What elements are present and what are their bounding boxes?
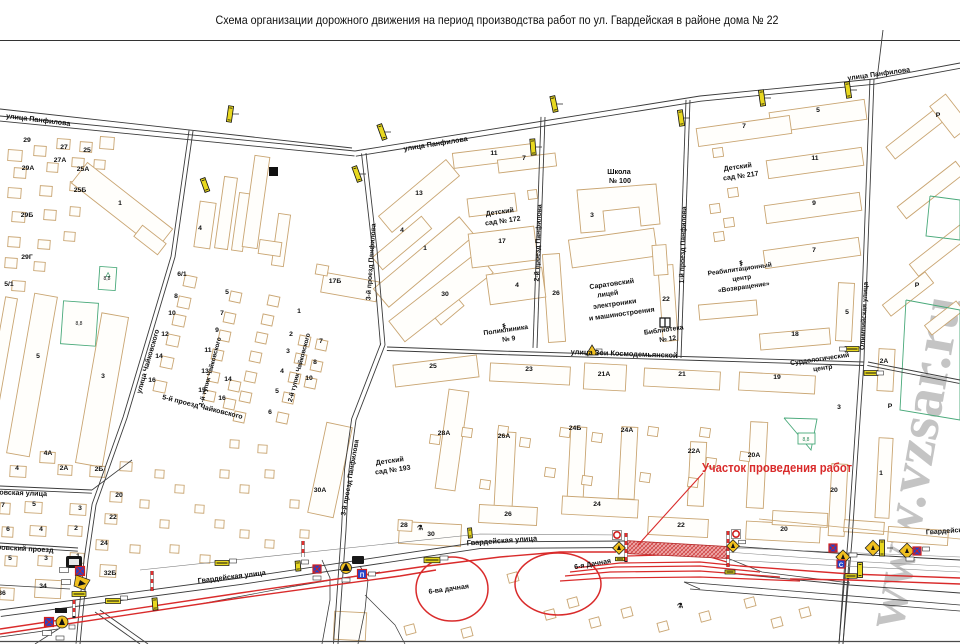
- svg-text:5: 5: [816, 107, 820, 114]
- svg-text:18: 18: [791, 331, 799, 338]
- svg-text:16: 16: [148, 377, 156, 384]
- svg-text:4: 4: [198, 225, 202, 232]
- svg-text:1: 1: [297, 308, 301, 315]
- svg-text:5: 5: [845, 309, 849, 316]
- svg-text:2А: 2А: [60, 465, 69, 472]
- svg-text:7: 7: [1, 502, 5, 509]
- svg-text:25: 25: [429, 363, 437, 370]
- svg-text:30: 30: [441, 291, 449, 298]
- svg-text:3: 3: [101, 373, 105, 380]
- svg-text:25: 25: [83, 147, 91, 154]
- svg-text:4: 4: [515, 282, 519, 289]
- svg-text:7: 7: [522, 155, 526, 162]
- svg-text:36: 36: [0, 590, 6, 597]
- svg-text:8,8: 8,8: [76, 321, 83, 327]
- svg-text:11: 11: [490, 150, 497, 157]
- svg-text:1: 1: [879, 470, 883, 477]
- svg-text:1: 1: [118, 200, 122, 207]
- svg-text:8: 8: [313, 359, 317, 366]
- svg-text:23: 23: [525, 366, 533, 373]
- svg-text:5/1: 5/1: [4, 281, 14, 288]
- svg-text:Участок проведения работ: Участок проведения работ: [702, 460, 852, 475]
- svg-text:29: 29: [23, 137, 31, 144]
- svg-text:2А: 2А: [880, 358, 889, 365]
- svg-text:2: 2: [74, 525, 78, 532]
- svg-text:27А: 27А: [54, 157, 67, 164]
- svg-text:22А: 22А: [688, 448, 701, 455]
- svg-text:22: 22: [662, 296, 670, 303]
- svg-text:26: 26: [552, 290, 560, 297]
- svg-text:5: 5: [275, 388, 279, 395]
- svg-text:4: 4: [39, 526, 43, 533]
- svg-text:3: 3: [78, 505, 82, 512]
- svg-text:10: 10: [168, 310, 176, 317]
- svg-text:12: 12: [161, 331, 169, 338]
- svg-text:8,8: 8,8: [104, 276, 111, 282]
- svg-text:26А: 26А: [498, 433, 511, 440]
- svg-text:24Б: 24Б: [569, 425, 582, 432]
- svg-text:24: 24: [100, 540, 108, 547]
- svg-text:17Б: 17Б: [329, 278, 342, 285]
- svg-text:7: 7: [812, 247, 816, 254]
- svg-text:15: 15: [198, 387, 206, 394]
- svg-text:5: 5: [8, 555, 12, 562]
- svg-text:11: 11: [811, 155, 818, 162]
- svg-text:20: 20: [830, 487, 838, 494]
- svg-text:13: 13: [415, 190, 423, 197]
- svg-text:32Б: 32Б: [104, 570, 117, 577]
- svg-text:3: 3: [44, 555, 48, 562]
- svg-text:7: 7: [220, 310, 224, 317]
- svg-text:26: 26: [504, 511, 512, 518]
- svg-text:29Б: 29Б: [21, 212, 34, 219]
- svg-text:17: 17: [498, 238, 506, 245]
- svg-text:1: 1: [76, 553, 80, 560]
- svg-text:9: 9: [215, 327, 219, 334]
- svg-text:28А: 28А: [438, 430, 451, 437]
- svg-text:⚗: ⚗: [417, 524, 424, 532]
- svg-text:20А: 20А: [748, 452, 761, 459]
- svg-text:30: 30: [427, 531, 435, 538]
- svg-text:3: 3: [286, 348, 290, 355]
- svg-text:9: 9: [812, 200, 816, 207]
- svg-text:29А: 29А: [22, 165, 35, 172]
- svg-text:Схема организации дорожного дв: Схема организации дорожного движения на …: [216, 13, 779, 27]
- svg-text:4: 4: [400, 227, 404, 234]
- svg-text:5: 5: [225, 289, 229, 296]
- svg-text:25А: 25А: [77, 166, 90, 173]
- svg-text:14: 14: [224, 376, 232, 383]
- svg-text:C: C: [839, 563, 844, 569]
- svg-text:20: 20: [115, 492, 123, 499]
- svg-text:Кировская улица: Кировская улица: [0, 487, 48, 498]
- svg-text:5: 5: [36, 353, 40, 360]
- svg-text:21: 21: [678, 371, 686, 378]
- svg-text:2Б: 2Б: [95, 466, 104, 473]
- svg-text:22: 22: [677, 522, 685, 529]
- svg-text:21А: 21А: [598, 371, 611, 378]
- svg-text:7: 7: [319, 338, 323, 345]
- svg-text:7: 7: [742, 123, 746, 130]
- svg-text:5: 5: [32, 501, 36, 508]
- svg-text:1: 1: [423, 245, 427, 252]
- svg-text:Р: Р: [888, 403, 893, 410]
- svg-text:4А: 4А: [44, 450, 53, 457]
- svg-text:П: П: [360, 573, 364, 579]
- svg-text:Школа: Школа: [607, 167, 632, 176]
- svg-text:8: 8: [174, 293, 178, 300]
- svg-text:13: 13: [201, 368, 209, 375]
- svg-text:22: 22: [109, 514, 117, 521]
- svg-text:Р: Р: [936, 112, 941, 119]
- svg-text:24А: 24А: [621, 427, 634, 434]
- svg-text:6: 6: [268, 409, 272, 416]
- svg-text:8,8: 8,8: [803, 437, 810, 443]
- svg-text:2: 2: [289, 331, 293, 338]
- svg-text:25Б: 25Б: [74, 187, 87, 194]
- svg-text:34: 34: [39, 583, 47, 590]
- svg-text:4: 4: [15, 465, 19, 472]
- svg-text:4: 4: [280, 368, 284, 375]
- svg-text:24: 24: [593, 501, 601, 508]
- svg-text:27: 27: [60, 144, 68, 151]
- svg-text:28: 28: [400, 522, 408, 529]
- svg-text:6/1: 6/1: [177, 271, 187, 278]
- svg-text:11: 11: [204, 347, 211, 354]
- svg-text:⚗: ⚗: [677, 602, 684, 610]
- svg-text:10: 10: [305, 375, 313, 382]
- svg-text:3: 3: [837, 404, 841, 411]
- svg-text:3: 3: [590, 212, 594, 219]
- svg-text:30А: 30А: [314, 487, 327, 494]
- svg-text:19: 19: [773, 374, 781, 381]
- svg-text:20: 20: [780, 526, 788, 533]
- svg-text:6: 6: [6, 526, 10, 533]
- svg-text:14: 14: [155, 353, 163, 360]
- svg-text:29Г: 29Г: [21, 254, 33, 261]
- svg-text:16: 16: [218, 395, 226, 402]
- svg-text:Р: Р: [915, 282, 920, 289]
- svg-text:№ 100: № 100: [609, 176, 631, 185]
